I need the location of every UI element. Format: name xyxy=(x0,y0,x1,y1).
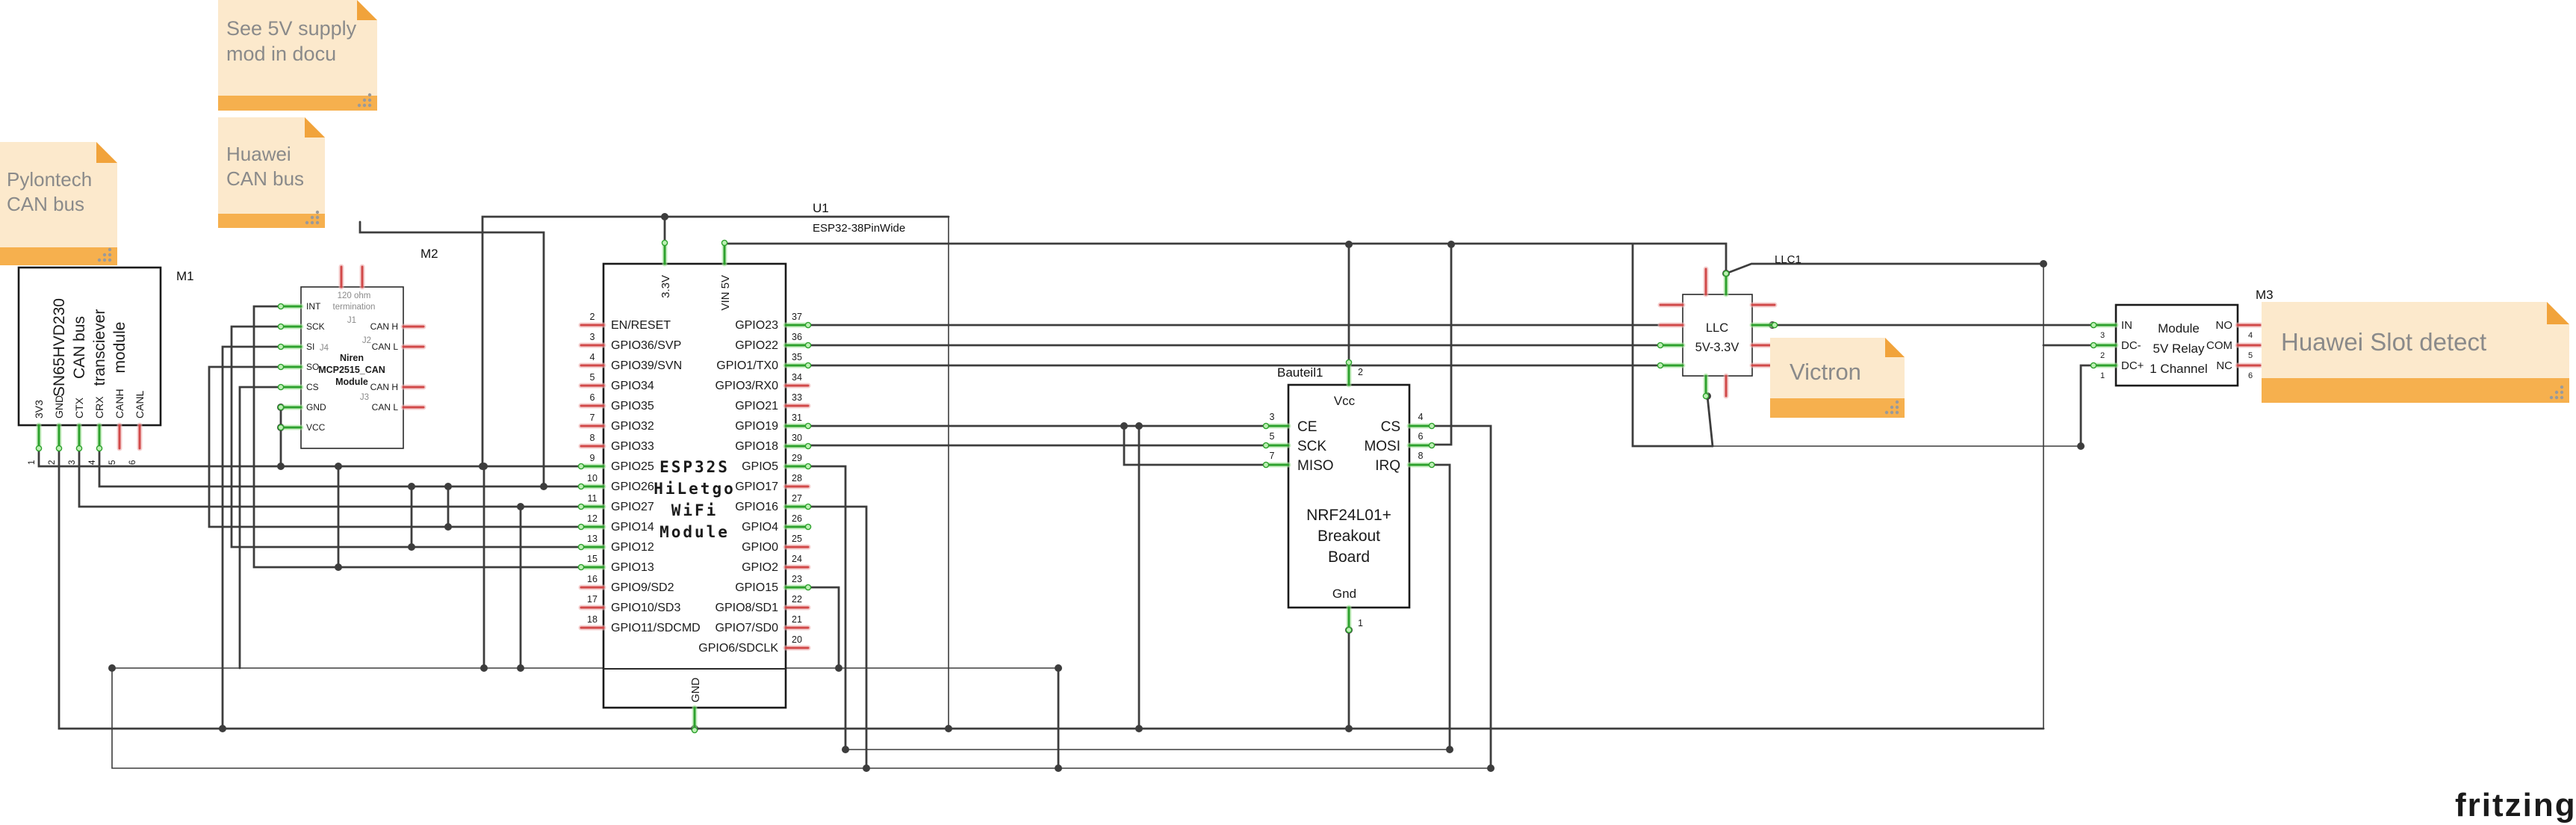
pin-label: MISO xyxy=(1297,458,1334,474)
pin-label: GPIO3/RX0 xyxy=(716,380,779,392)
pin-endpoint xyxy=(1263,462,1268,467)
junction-dot xyxy=(1055,764,1062,772)
wire[interactable] xyxy=(2081,365,2094,446)
pin-label: EN/RESET xyxy=(611,319,671,332)
pin-label: GPIO27 xyxy=(611,501,654,513)
m2-inner: J1 xyxy=(347,316,356,325)
note-handle-icon xyxy=(316,221,319,224)
pin-label: GPIO0 xyxy=(742,541,778,554)
pin-label: DC- xyxy=(2121,339,2141,352)
junction-dot xyxy=(1345,241,1353,248)
pin-label: INT xyxy=(306,301,321,312)
pin-label: GPIO22 xyxy=(735,339,778,352)
pin-endpoint xyxy=(76,445,81,451)
pin-label: GPIO5 xyxy=(742,460,778,473)
u1-ref: U1 xyxy=(813,201,829,215)
note-handle-icon xyxy=(368,99,371,102)
junction-dot xyxy=(1446,746,1453,753)
pin-endpoint xyxy=(578,483,583,489)
note-handle-icon xyxy=(2560,396,2563,399)
pin-label: 33 xyxy=(792,392,802,403)
pin-label: GPIO10/SD3 xyxy=(611,602,680,614)
pin-label: 5 xyxy=(108,460,117,465)
m3-line: 5V Relay xyxy=(2153,342,2205,356)
pin-label: 2 xyxy=(48,460,57,465)
pin-label: CAN L xyxy=(372,342,399,352)
pin-label: GPIO2 xyxy=(742,561,778,574)
pin-label: 18 xyxy=(587,614,598,625)
junction-dot xyxy=(444,523,452,531)
junction-dot xyxy=(945,725,952,732)
pin-label: GPIO32 xyxy=(611,420,654,433)
wire[interactable] xyxy=(1726,264,2043,274)
pin-endpoint xyxy=(96,445,102,451)
pin-label: 16 xyxy=(587,574,598,584)
pin-label: GPIO13 xyxy=(611,561,654,574)
nrf-title: Breakout xyxy=(1318,528,1380,545)
wire[interactable] xyxy=(808,466,845,750)
pin-label: 34 xyxy=(792,372,802,383)
u1-title: Module xyxy=(659,523,730,541)
note-line: CAN bus xyxy=(226,167,304,190)
pin-label: GPIO11/SDCMD xyxy=(611,622,701,634)
note-handle-icon xyxy=(1896,411,1899,414)
note-huawei-can-bus[interactable]: Huawei CAN bus xyxy=(218,117,325,228)
pin-endpoint xyxy=(36,445,41,451)
junction-dot xyxy=(480,463,488,470)
pin-label: CAN H xyxy=(370,382,398,392)
m2-inner: J4 xyxy=(320,344,329,353)
m2-inner: J3 xyxy=(360,393,369,402)
pin-endpoint xyxy=(1346,627,1351,632)
junction-dot xyxy=(408,543,415,551)
junction-dot xyxy=(1135,725,1143,732)
pin-label: GND xyxy=(689,678,702,703)
component-u1-esp32[interactable]: U1 ESP32-38PinWide ESP32S HiLetgo WiFi M… xyxy=(578,201,905,733)
m2-inner: 120 ohm xyxy=(338,291,371,300)
note-fold-icon xyxy=(357,0,377,20)
junction-dot xyxy=(863,764,870,772)
m2-inner: termination xyxy=(333,303,376,312)
note-handle-icon xyxy=(103,253,106,256)
pin-label: GND xyxy=(306,402,326,412)
junction-dot xyxy=(335,563,342,571)
m3-ref: M3 xyxy=(2256,288,2274,302)
junction-dot xyxy=(1135,422,1143,430)
pin-label: 36 xyxy=(792,332,802,342)
pin-label: 31 xyxy=(792,412,802,423)
wire[interactable] xyxy=(79,448,581,507)
llc-ref: LLC1 xyxy=(1775,253,1801,266)
pin-label: 6 xyxy=(1418,431,1424,442)
pin-endpoint xyxy=(1703,393,1708,398)
u1-title: HiLetgo xyxy=(654,480,736,498)
pin-label: GPIO17 xyxy=(735,481,778,493)
pin-label: GPIO18 xyxy=(735,440,778,453)
pin-label: GPIO39/SVN xyxy=(611,359,682,372)
note-fold-icon xyxy=(2547,302,2569,324)
pin-label: SCK xyxy=(1297,439,1326,454)
note-bar[interactable] xyxy=(1770,398,1905,418)
pin-label: GPIO12 xyxy=(611,541,654,554)
pin-label: 37 xyxy=(792,312,802,322)
pin-label: 5 xyxy=(1270,431,1275,442)
schematic-svg: M1 SN65HVD230 CAN bus transciever module… xyxy=(0,0,2576,825)
pin-label: 12 xyxy=(587,513,598,524)
pin-label: 3 xyxy=(68,460,77,465)
wire[interactable] xyxy=(724,244,1726,274)
pin-label: IRQ xyxy=(1375,458,1400,474)
junction-dot xyxy=(108,664,116,672)
wire[interactable] xyxy=(39,448,581,466)
note-handle-icon xyxy=(358,104,361,107)
pin-label: GPIO26 xyxy=(611,481,654,493)
pin-label: GPIO6/SDCLK xyxy=(698,642,778,655)
note-line: Huawei Slot detect xyxy=(2281,328,2486,356)
junction-dot xyxy=(835,664,842,672)
note-bar[interactable] xyxy=(218,96,377,111)
pin-label: 2 xyxy=(1358,367,1363,377)
junction-dot xyxy=(1055,664,1062,672)
m1-line: module xyxy=(111,322,128,374)
pin-endpoint xyxy=(278,364,283,369)
m1-ref: M1 xyxy=(176,269,194,283)
pin-label: 3 xyxy=(590,332,595,342)
pin-label: 29 xyxy=(792,453,802,463)
pin-endpoint xyxy=(2091,322,2096,327)
note-line: Victron xyxy=(1790,359,1861,385)
note-bar[interactable] xyxy=(0,247,117,265)
pin-endpoint xyxy=(1263,442,1268,448)
note-fold-icon xyxy=(96,142,117,163)
pin-label: 35 xyxy=(792,352,802,362)
pin-label: GPIO19 xyxy=(735,420,778,433)
pin-endpoint xyxy=(1429,423,1434,428)
junction-dot xyxy=(2077,442,2085,450)
pin-label: 4 xyxy=(2248,331,2253,340)
note-bar[interactable] xyxy=(218,214,325,228)
note-handle-icon xyxy=(1890,411,1893,414)
m3-line: 1 Channel xyxy=(2150,362,2208,376)
pin-label: 6 xyxy=(590,392,595,403)
pin-label: IN xyxy=(2121,319,2132,332)
pin-label: CRX xyxy=(93,396,105,418)
pin-label: GPIO36/SVP xyxy=(611,339,681,352)
pin-endpoint xyxy=(721,240,727,245)
wire[interactable] xyxy=(112,668,1491,768)
junction-dot xyxy=(1120,422,1128,430)
junction-dot xyxy=(2040,260,2047,268)
pin-label: 7 xyxy=(1270,451,1275,461)
junction-dot xyxy=(540,483,547,490)
pin-endpoint xyxy=(1429,462,1434,467)
pin-endpoint xyxy=(1657,362,1663,368)
m2-inner: J2 xyxy=(362,336,371,345)
pin-label: 3.3V xyxy=(659,275,672,298)
pin-endpoint xyxy=(278,424,283,430)
pin-endpoint xyxy=(805,322,810,327)
wire[interactable] xyxy=(1432,465,1450,750)
note-line: Pylontech xyxy=(7,168,92,191)
pin-label: 4 xyxy=(88,460,97,465)
note-fold-icon xyxy=(305,117,325,137)
llc-body[interactable] xyxy=(1683,294,1752,376)
pin-label: CAN L xyxy=(372,402,399,412)
pin-label: 6 xyxy=(128,460,137,465)
note-fold-icon xyxy=(1885,338,1905,357)
pin-endpoint xyxy=(578,504,583,509)
pin-label: 3 xyxy=(1270,412,1275,422)
pin-label: 2 xyxy=(2100,351,2105,360)
junction-dot xyxy=(842,746,849,753)
pin-endpoint xyxy=(692,727,697,732)
pin-endpoint xyxy=(805,362,810,368)
note-line: See 5V supply xyxy=(226,17,357,40)
pin-label: 28 xyxy=(792,473,802,483)
pin-label: VCC xyxy=(306,422,326,433)
pin-label: 11 xyxy=(588,493,598,504)
note-handle-icon xyxy=(1896,406,1899,409)
note-handle-icon xyxy=(2560,386,2563,389)
note-see-5v-supply[interactable]: See 5V supply mod in docu xyxy=(218,0,377,111)
llc-line: 5V-3.3V xyxy=(1695,341,1739,354)
pin-endpoint xyxy=(805,504,810,509)
pin-label: 6 xyxy=(2248,371,2253,380)
junction-dot xyxy=(517,664,524,672)
pin-label: 15 xyxy=(587,554,598,564)
note-victron[interactable]: Victron xyxy=(1770,338,1905,418)
junction-dot xyxy=(1345,725,1353,732)
note-huawei-slot-detect[interactable]: Huawei Slot detect xyxy=(2262,302,2569,403)
pin-label: GPIO9/SD2 xyxy=(611,581,674,594)
pin-endpoint xyxy=(578,524,583,529)
pin-label: NC xyxy=(2216,359,2232,372)
pin-label: SO xyxy=(306,362,319,372)
pin-label: GND xyxy=(53,395,65,418)
nrf-vcc-label: Vcc xyxy=(1334,394,1356,408)
note-handle-icon xyxy=(2555,396,2558,399)
pin-label: 27 xyxy=(792,493,802,504)
pin-endpoint xyxy=(805,584,810,590)
wire[interactable] xyxy=(1432,426,1491,768)
pin-endpoint xyxy=(1657,342,1663,347)
component-m1-can-transceiver[interactable]: M1 SN65HVD230 CAN bus transciever module… xyxy=(19,268,194,465)
m2-ref: M2 xyxy=(420,247,438,261)
pin-endpoint xyxy=(2091,342,2096,347)
pin-label: 30 xyxy=(792,433,802,443)
m1-line: transciever xyxy=(91,309,108,386)
pin-label: 10 xyxy=(587,473,598,483)
junction-dot xyxy=(661,213,668,220)
note-handle-icon xyxy=(1885,411,1888,414)
component-nrf24l01-breakout[interactable]: Bauteil1 NRF24L01+ Breakout Board Vcc Gn… xyxy=(1263,359,1434,632)
m2-name: MCP2515_CAN xyxy=(318,365,385,375)
u1-type: ESP32-38PinWide xyxy=(813,222,905,235)
pin-label: GPIO23 xyxy=(735,319,778,332)
pin-label: CS xyxy=(1381,419,1400,435)
pin-label: SI xyxy=(306,342,314,352)
pin-endpoint xyxy=(662,240,667,245)
junction-dot xyxy=(1487,764,1495,772)
pin-label: 5 xyxy=(2248,351,2253,360)
pin-label: GPIO16 xyxy=(735,501,778,513)
note-bar[interactable] xyxy=(2262,378,2569,403)
pin-endpoint xyxy=(805,443,810,448)
schematic-canvas: M1 SN65HVD230 CAN bus transciever module… xyxy=(0,0,2576,825)
wire[interactable] xyxy=(232,327,581,547)
pin-endpoint xyxy=(1263,423,1268,428)
pin-label: 17 xyxy=(587,594,598,605)
pin-label: GPIO14 xyxy=(611,521,654,534)
pin-label: DC+ xyxy=(2121,359,2144,372)
wire[interactable] xyxy=(808,587,839,668)
llc-line: LLC xyxy=(1706,321,1728,335)
pin-label: 26 xyxy=(792,513,802,524)
pin-label: VIN 5V xyxy=(719,275,732,311)
pin-endpoint xyxy=(2091,362,2096,368)
junction-dot xyxy=(480,664,488,672)
pin-label: 4 xyxy=(1418,412,1424,422)
pin-label: 4 xyxy=(590,352,595,362)
junction-dot-layer xyxy=(108,213,2085,772)
pin-label: GPIO4 xyxy=(742,521,778,534)
pin-label: 8 xyxy=(590,433,595,443)
note-handle-icon xyxy=(1890,406,1893,409)
pin-label: 13 xyxy=(587,534,598,544)
pin-label: 5 xyxy=(590,372,595,383)
pin-label: 25 xyxy=(792,534,802,544)
pin-label: 3V3 xyxy=(33,400,45,418)
note-pylontech-can-bus[interactable]: Pylontech CAN bus xyxy=(0,142,117,265)
pin-label: GPIO25 xyxy=(611,460,654,473)
nrf-title: Board xyxy=(1328,549,1370,566)
junction-dot xyxy=(219,725,226,732)
pin-label: 20 xyxy=(792,634,802,645)
note-handle-icon xyxy=(368,104,371,107)
junction-dot xyxy=(277,463,285,470)
pin-label: GPIO33 xyxy=(611,440,654,453)
pin-endpoint xyxy=(578,564,583,569)
nrf-ref: Bauteil1 xyxy=(1277,365,1323,380)
pin-label: GPIO15 xyxy=(735,581,778,594)
note-handle-icon xyxy=(98,259,101,262)
nrf-title: NRF24L01+ xyxy=(1306,507,1391,524)
m3-line: Module xyxy=(2158,321,2200,336)
pin-endpoint xyxy=(805,524,810,529)
junction-dot xyxy=(335,463,342,470)
pin-label: MOSI xyxy=(1364,439,1400,454)
pin-endpoint xyxy=(1429,442,1434,448)
pin-label: NO xyxy=(2216,319,2233,332)
pin-label: GPIO7/SD0 xyxy=(716,622,779,634)
pin-endpoint xyxy=(578,544,583,549)
note-handle-icon xyxy=(2555,391,2558,394)
note-handle-icon xyxy=(368,93,371,96)
pin-endpoint xyxy=(278,303,283,309)
note-handle-icon xyxy=(108,259,111,262)
pin-label: 1 xyxy=(2100,371,2105,380)
component-m2-mcp2515-can-module[interactable]: M2 120 ohm termination J1 J2 J4 Niren MC… xyxy=(278,247,438,448)
note-handle-icon xyxy=(316,211,319,214)
pin-label: GPIO8/SD1 xyxy=(716,602,779,614)
pin-label: 1 xyxy=(1358,618,1363,628)
pin-endpoint xyxy=(578,463,583,469)
note-handle-icon xyxy=(363,104,366,107)
note-handle-icon xyxy=(1896,401,1899,404)
pin-label: 21 xyxy=(792,614,802,625)
u1-title: ESP32S xyxy=(659,458,730,476)
pin-label: COM xyxy=(2206,339,2232,352)
note-handle-icon xyxy=(108,248,111,251)
note-line: Huawei xyxy=(226,143,291,165)
note-handle-icon xyxy=(311,216,314,219)
pin-label: CANL xyxy=(134,390,146,418)
pin-label: 24 xyxy=(792,554,802,564)
note-handle-icon xyxy=(311,221,314,224)
pin-label: CAN H xyxy=(370,321,398,332)
junction-dot xyxy=(1447,241,1455,248)
pin-endpoint xyxy=(56,445,61,451)
note-handle-icon xyxy=(2560,391,2563,394)
m2-name: Niren xyxy=(340,353,364,363)
pin-endpoint xyxy=(805,463,810,469)
pin-endpoint xyxy=(278,344,283,349)
pin-label: GPIO21 xyxy=(735,400,778,412)
pin-endpoint xyxy=(1723,271,1728,276)
pin-endpoint xyxy=(1346,359,1351,365)
note-handle-icon xyxy=(2550,396,2553,399)
pin-label: 9 xyxy=(590,453,595,463)
pin-endpoint xyxy=(278,324,283,329)
note-line: mod in docu xyxy=(226,43,336,65)
m2-name: Module xyxy=(335,377,368,387)
junction-dot xyxy=(408,483,415,490)
junction-dot xyxy=(444,483,452,490)
component-m3-relay-module[interactable]: M3 Module 5V Relay 1 Channel IN3DC-2DC+1… xyxy=(2091,288,2273,386)
m1-line: CAN bus xyxy=(71,316,88,379)
pin-label: 7 xyxy=(590,412,595,423)
pin-endpoint xyxy=(278,384,283,389)
wire[interactable] xyxy=(1707,396,1713,446)
pin-endpoint xyxy=(278,404,283,410)
pin-endpoint xyxy=(805,342,810,347)
pin-endpoint xyxy=(1772,322,1777,327)
pin-label: 23 xyxy=(792,574,802,584)
fritzing-watermark: fritzing xyxy=(2455,787,2576,824)
pin-label: CE xyxy=(1297,419,1317,435)
u1-title: WiFi xyxy=(671,501,719,519)
nrf-gnd-label: Gnd xyxy=(1332,587,1356,601)
m1-line: SN65HVD230 xyxy=(51,298,68,397)
note-handle-icon xyxy=(363,99,366,102)
note-handle-icon xyxy=(305,221,308,224)
pin-label: SCK xyxy=(306,321,325,332)
pin-label: 3 xyxy=(2100,331,2105,340)
junction-dot xyxy=(517,503,524,510)
note-handle-icon xyxy=(103,259,106,262)
wire[interactable] xyxy=(59,448,2043,729)
nrf-body[interactable] xyxy=(1288,385,1409,608)
pin-label: 1 xyxy=(28,460,37,465)
note-handle-icon xyxy=(108,253,111,256)
pin-label: 22 xyxy=(792,594,802,605)
pin-label: CANH xyxy=(114,389,125,418)
pin-label: GPIO1/TX0 xyxy=(716,359,778,372)
note-handle-icon xyxy=(316,216,319,219)
pin-label: 2 xyxy=(590,312,595,322)
pin-label: GPIO35 xyxy=(611,400,654,412)
pin-label: CTX xyxy=(73,397,85,418)
